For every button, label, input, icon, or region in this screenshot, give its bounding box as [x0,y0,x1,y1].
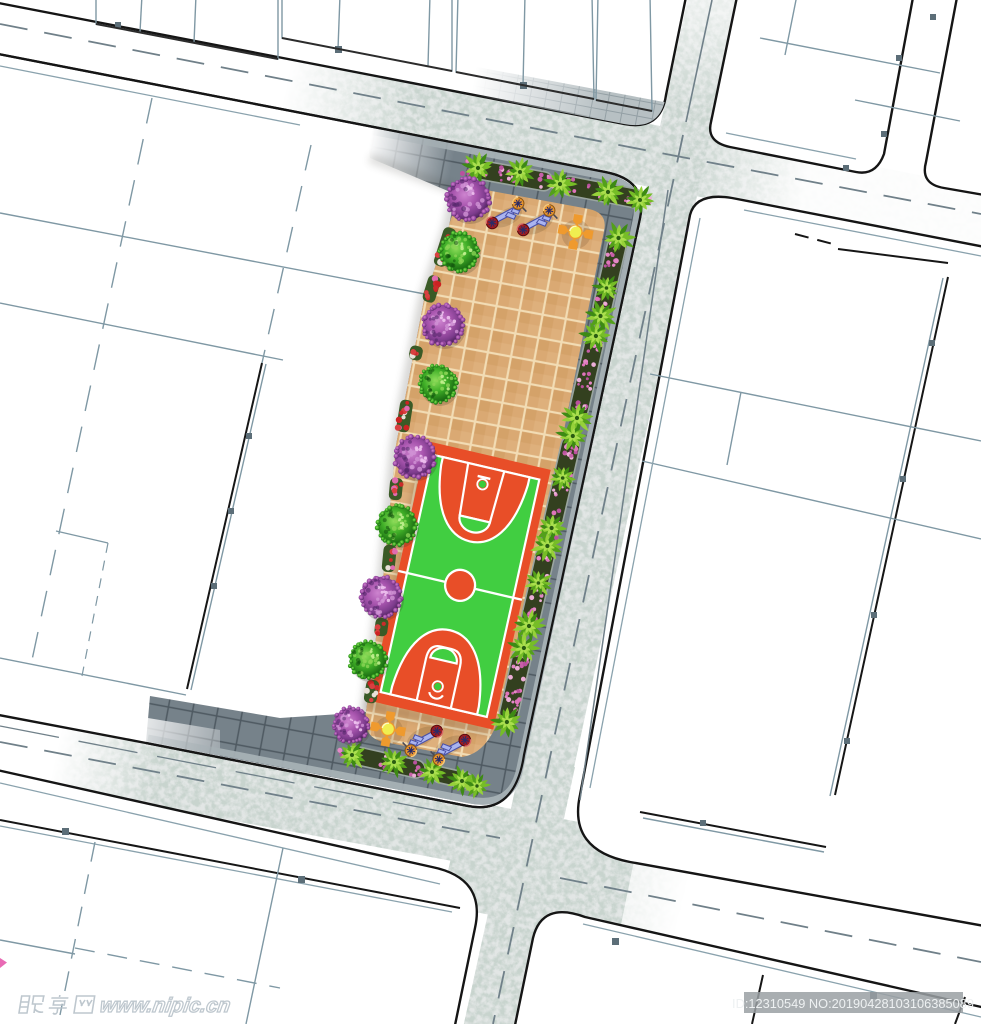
svg-text:www.nipic.cn: www.nipic.cn [98,994,232,1017]
svg-text:ID:12310549 NO:201904281031063: ID:12310549 NO:20190428103106385089 [732,996,974,1011]
